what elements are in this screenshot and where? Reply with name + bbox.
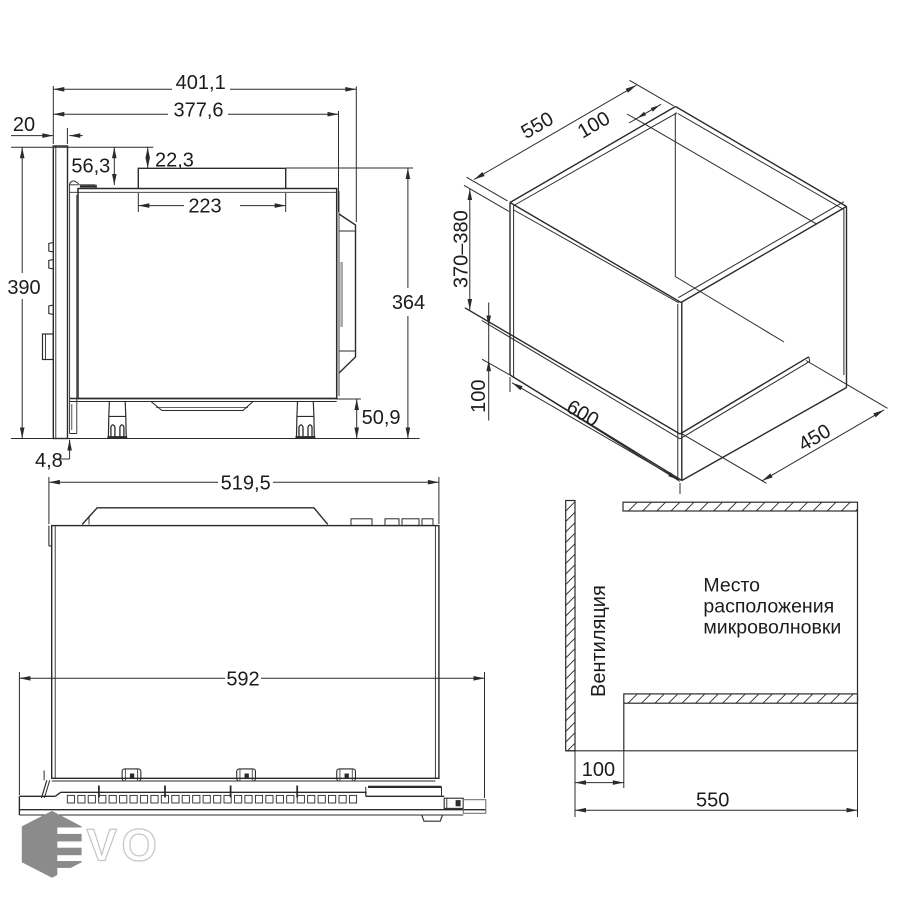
svg-text:519,5: 519,5 bbox=[221, 473, 271, 495]
svg-text:расположения: расположения bbox=[703, 596, 834, 618]
svg-text:377,6: 377,6 bbox=[173, 100, 223, 122]
svg-text:592: 592 bbox=[226, 668, 259, 690]
svg-text:100: 100 bbox=[468, 380, 490, 413]
svg-text:50,9: 50,9 bbox=[362, 407, 401, 429]
svg-text:100: 100 bbox=[582, 759, 615, 781]
svg-text:микроволновки: микроволновки bbox=[703, 617, 841, 639]
svg-text:V: V bbox=[87, 820, 118, 871]
svg-text:56,3: 56,3 bbox=[71, 156, 110, 178]
svg-text:4,8: 4,8 bbox=[35, 450, 63, 472]
svg-text:364: 364 bbox=[392, 292, 425, 314]
svg-text:390: 390 bbox=[7, 277, 40, 299]
svg-text:20: 20 bbox=[13, 114, 35, 136]
svg-text:22,3: 22,3 bbox=[155, 150, 194, 172]
svg-text:Место: Место bbox=[703, 575, 760, 597]
svg-text:Вентиляция: Вентиляция bbox=[588, 585, 610, 697]
svg-text:401,1: 401,1 bbox=[176, 72, 226, 94]
svg-text:O: O bbox=[122, 820, 157, 871]
svg-text:550: 550 bbox=[696, 790, 729, 812]
svg-text:223: 223 bbox=[188, 195, 221, 217]
svg-text:370–380: 370–380 bbox=[450, 210, 472, 288]
